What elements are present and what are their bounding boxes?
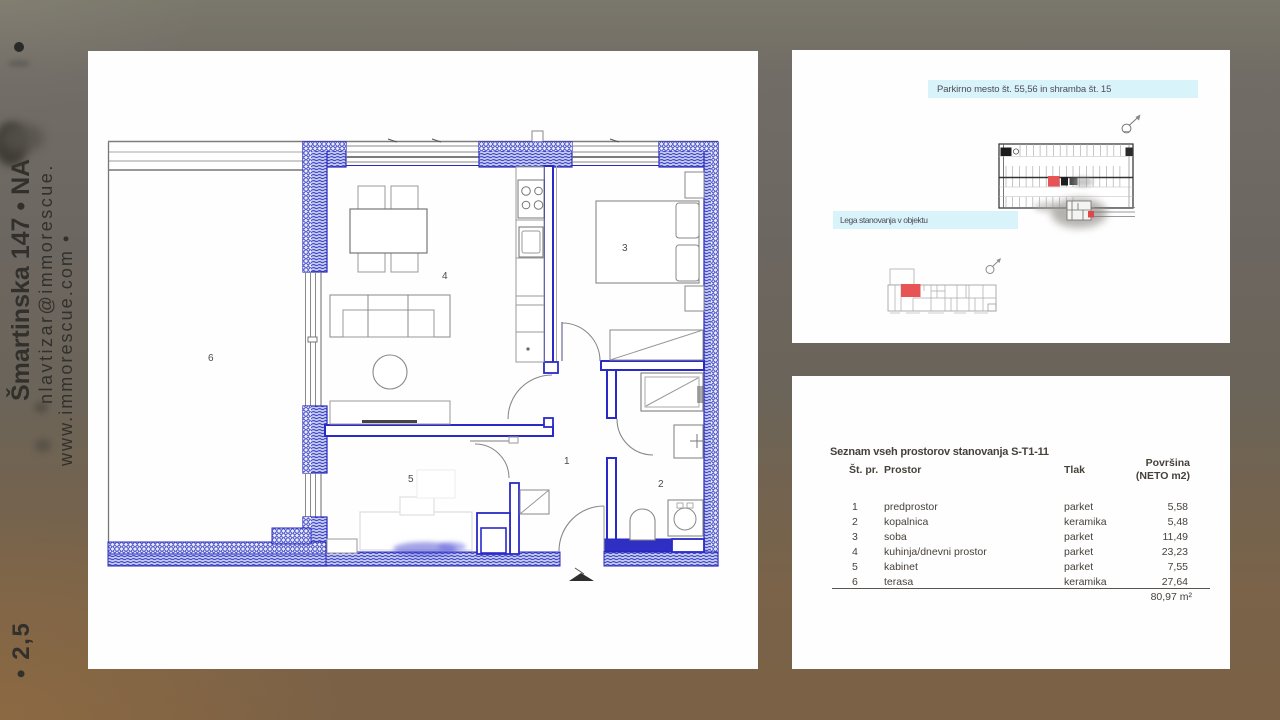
svg-text:3: 3 [622, 243, 628, 254]
svg-text:1: 1 [564, 456, 570, 467]
svg-text:2: 2 [658, 479, 664, 490]
svg-text:5: 5 [408, 474, 414, 485]
svg-text:4: 4 [442, 271, 448, 282]
svg-text:6: 6 [208, 353, 214, 364]
